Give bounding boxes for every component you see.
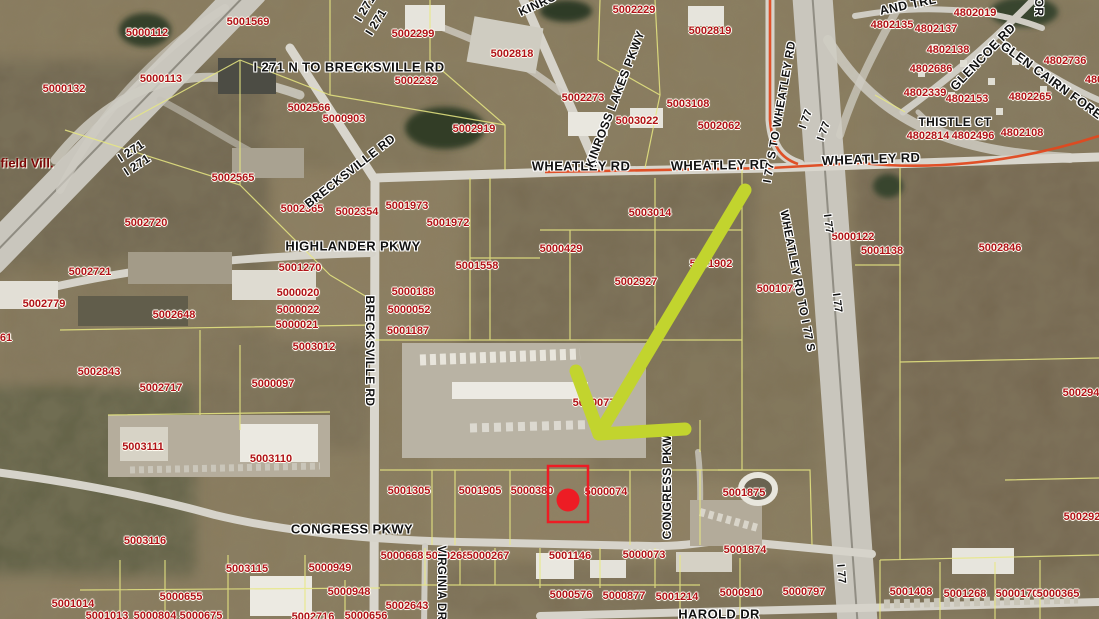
gis-aerial-map[interactable]: field Vill. 5000112500156950001135000132… (0, 0, 1099, 619)
annotation-layer (0, 0, 1099, 619)
location-dot (557, 489, 580, 512)
highlight-parcel-marker (548, 466, 588, 522)
pointer-arrow (576, 190, 745, 434)
